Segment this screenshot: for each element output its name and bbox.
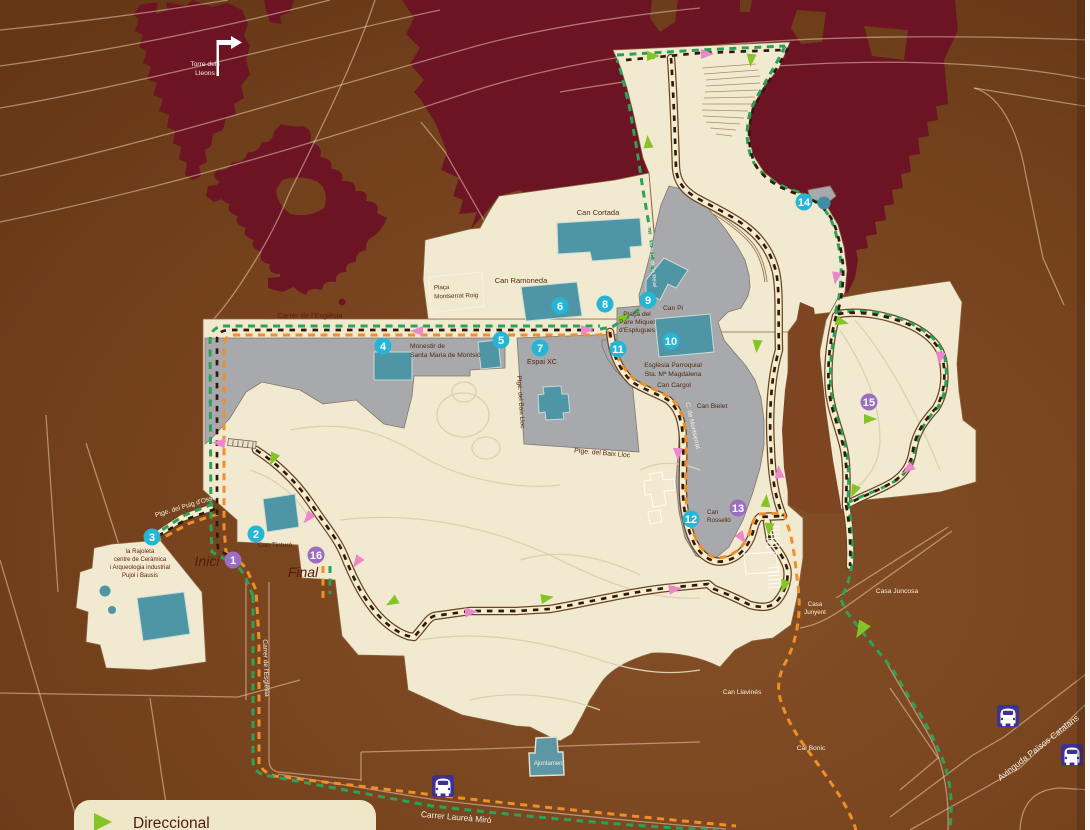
svg-text:6: 6 (557, 301, 563, 313)
svg-text:Cal Bonic: Cal Bonic (797, 745, 826, 752)
svg-text:Can Llavinés: Can Llavinés (723, 689, 762, 696)
svg-text:Can Cargol: Can Cargol (657, 382, 691, 389)
svg-text:Plaça delPare Miqueld'Esplugue: Plaça delPare Miqueld'Esplugues (619, 311, 656, 334)
svg-text:3: 3 (149, 532, 155, 544)
svg-text:Can Tinturé: Can Tinturé (258, 542, 293, 549)
svg-text:Can Pi: Can Pi (663, 305, 684, 312)
svg-text:10: 10 (665, 336, 677, 348)
svg-text:Direccional: Direccional (133, 815, 210, 830)
svg-text:Casa Juncosa: Casa Juncosa (876, 588, 919, 595)
svg-text:9: 9 (645, 295, 651, 307)
svg-text:Can Cortada: Can Cortada (577, 208, 620, 217)
svg-text:Inici: Inici (195, 553, 221, 569)
svg-text:4: 4 (380, 341, 387, 353)
svg-text:12: 12 (685, 514, 697, 526)
svg-text:Can Bielet: Can Bielet (697, 403, 728, 410)
svg-text:14: 14 (798, 197, 811, 209)
svg-text:Final: Final (288, 564, 319, 580)
svg-text:5: 5 (498, 335, 504, 347)
svg-text:15: 15 (863, 397, 875, 409)
svg-text:Can Ramoneda: Can Ramoneda (495, 276, 548, 285)
svg-text:Ajuntament: Ajuntament (534, 761, 565, 767)
svg-text:7: 7 (537, 343, 543, 355)
svg-text:Lleons: Lleons (195, 70, 215, 77)
svg-text:Carrer de l'Església: Carrer de l'Església (277, 311, 343, 320)
svg-text:13: 13 (732, 503, 744, 515)
svg-text:1: 1 (230, 555, 236, 567)
svg-text:11: 11 (612, 344, 624, 356)
svg-text:2: 2 (253, 529, 259, 541)
svg-text:Torre dels: Torre dels (190, 61, 220, 68)
svg-text:Espai XC: Espai XC (527, 357, 557, 366)
svg-text:16: 16 (310, 550, 322, 562)
svg-text:8: 8 (602, 299, 608, 311)
